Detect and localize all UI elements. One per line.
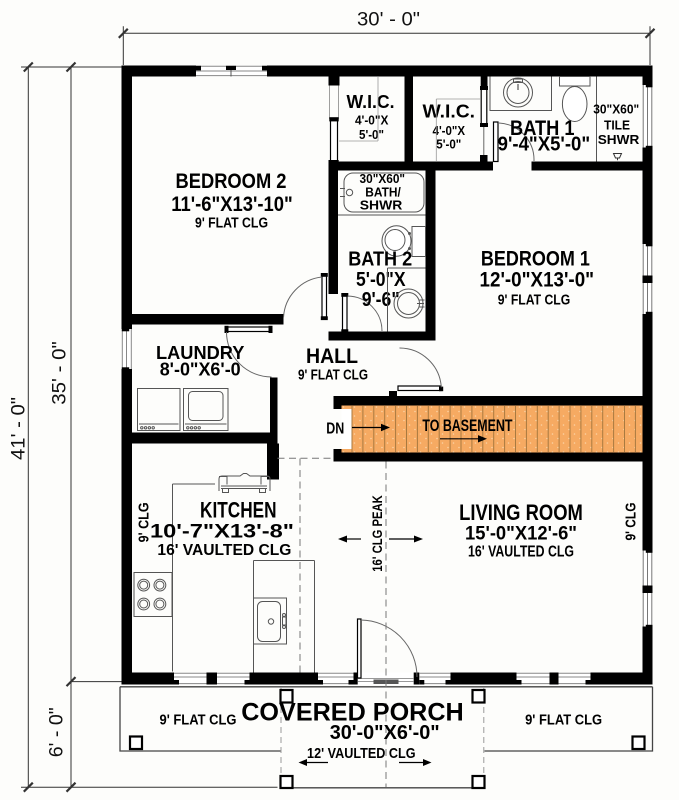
svg-text:10'-7"X13'-8": 10'-7"X13'-8": [150, 521, 294, 543]
svg-text:5'-0"X: 5'-0"X: [356, 269, 406, 291]
svg-text:SHWR: SHWR: [598, 132, 640, 147]
svg-text:9' CLG: 9' CLG: [624, 503, 640, 541]
svg-text:35' - 0": 35' - 0": [50, 341, 71, 405]
svg-text:11'-6"X13'-10": 11'-6"X13'-10": [171, 193, 293, 216]
svg-text:8'-0"X6'-0: 8'-0"X6'-0: [160, 359, 241, 379]
svg-text:5'-0": 5'-0": [436, 137, 461, 152]
svg-text:15'-0"X12'-6": 15'-0"X12'-6": [465, 523, 577, 545]
svg-text:W.I.C.: W.I.C.: [423, 100, 476, 121]
svg-text:9' CLG: 9' CLG: [136, 502, 152, 542]
svg-text:TILE: TILE: [604, 118, 630, 133]
svg-text:16' VAULTED CLG: 16' VAULTED CLG: [157, 542, 291, 559]
svg-text:TO BASEMENT: TO BASEMENT: [422, 416, 512, 435]
svg-text:BEDROOM 2: BEDROOM 2: [176, 170, 287, 193]
svg-text:5'-0": 5'-0": [359, 127, 384, 142]
svg-text:9'-4"X5'-0": 9'-4"X5'-0": [498, 134, 591, 156]
svg-text:4'-0"X: 4'-0"X: [433, 123, 466, 138]
svg-text:12'-0"X13'-0": 12'-0"X13'-0": [480, 269, 595, 292]
svg-text:9' FLAT CLG: 9' FLAT CLG: [498, 293, 571, 309]
svg-text:9' FLAT CLG: 9' FLAT CLG: [525, 713, 602, 729]
svg-text:30'-0"X6'-0": 30'-0"X6'-0": [330, 722, 440, 744]
svg-text:LIVING ROOM: LIVING ROOM: [459, 500, 583, 525]
svg-text:30' - 0": 30' - 0": [357, 10, 420, 31]
svg-text:9' FLAT CLG: 9' FLAT CLG: [160, 713, 237, 729]
svg-text:W.I.C.: W.I.C.: [347, 91, 395, 112]
svg-text:30"X60": 30"X60": [360, 172, 406, 186]
svg-text:9' FLAT CLG: 9' FLAT CLG: [195, 216, 268, 232]
svg-text:9' FLAT CLG: 9' FLAT CLG: [298, 367, 368, 383]
svg-text:4'-0"X: 4'-0"X: [355, 112, 389, 127]
svg-text:KITCHEN: KITCHEN: [200, 497, 277, 522]
svg-text:BATH 2: BATH 2: [348, 249, 412, 271]
svg-text:41' - 0": 41' - 0": [9, 397, 30, 460]
svg-text:6' - 0": 6' - 0": [47, 707, 68, 757]
svg-text:HALL: HALL: [306, 345, 358, 368]
svg-text:DN: DN: [326, 421, 344, 438]
svg-text:30"X60": 30"X60": [593, 101, 639, 116]
svg-text:SHWR: SHWR: [360, 198, 403, 212]
svg-text:16' VAULTED CLG: 16' VAULTED CLG: [468, 544, 574, 561]
svg-text:16' CLG PEAK: 16' CLG PEAK: [369, 495, 385, 572]
svg-text:BEDROOM 1: BEDROOM 1: [481, 248, 590, 271]
svg-text:12' VAULTED CLG: 12' VAULTED CLG: [307, 745, 416, 762]
